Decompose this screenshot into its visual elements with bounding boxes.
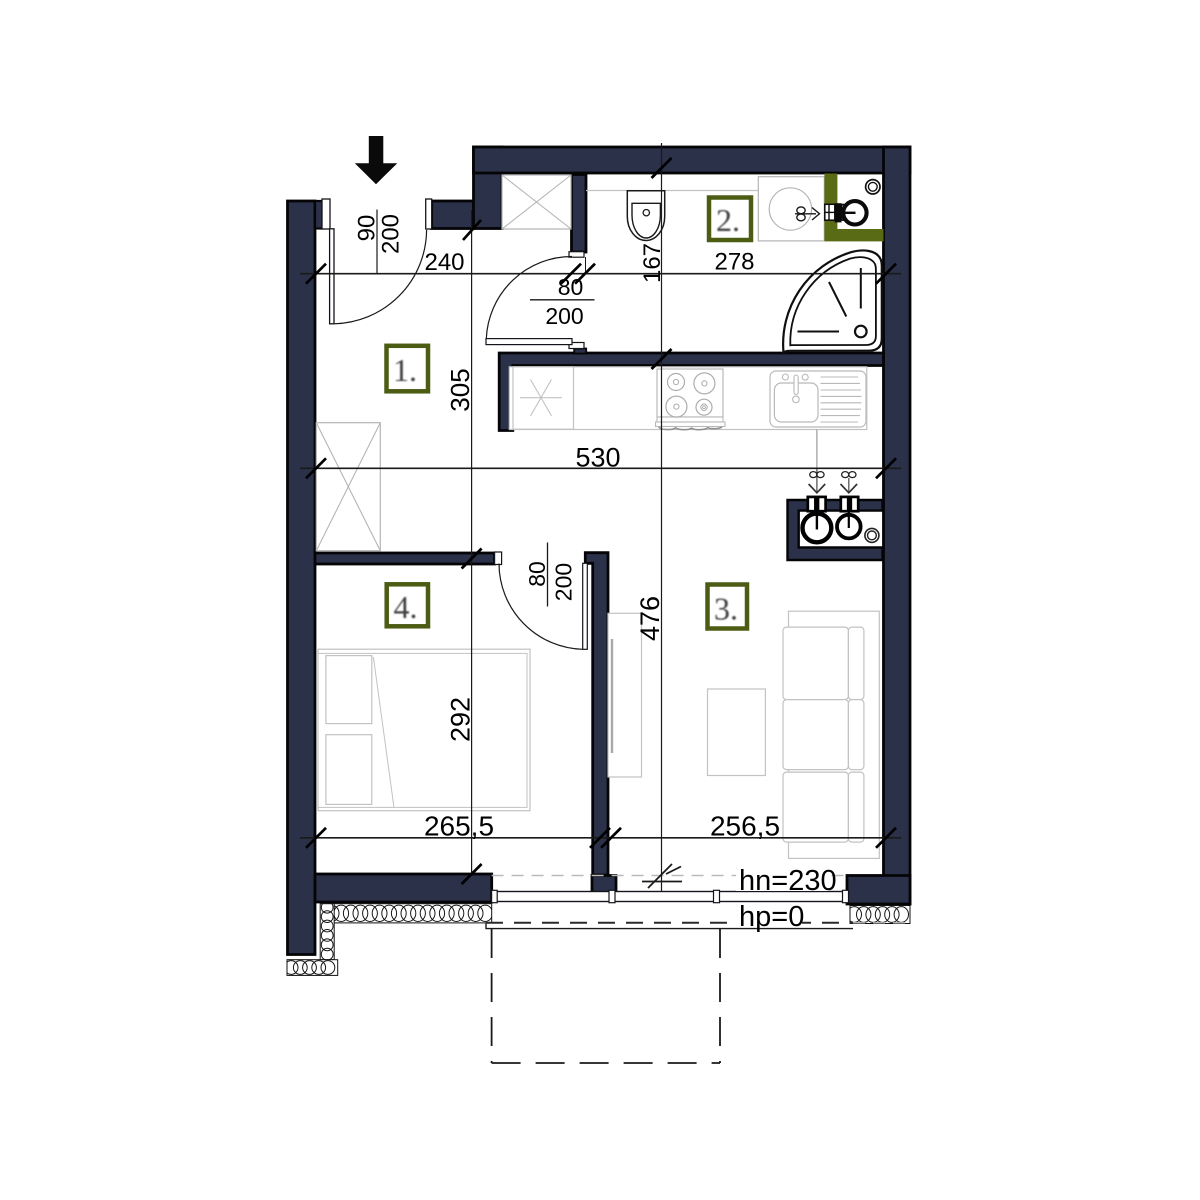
svg-text:1.: 1. [393, 352, 417, 388]
svg-text:305: 305 [445, 368, 475, 411]
svg-text:530: 530 [575, 443, 620, 473]
svg-text:hp=0: hp=0 [739, 901, 804, 933]
svg-text:167: 167 [639, 243, 666, 283]
svg-text:4.: 4. [394, 589, 418, 625]
svg-text:200: 200 [551, 563, 577, 601]
svg-text:265,5: 265,5 [424, 811, 494, 842]
svg-text:256,5: 256,5 [710, 811, 780, 842]
svg-text:hn=230: hn=230 [739, 865, 837, 897]
svg-text:90: 90 [354, 215, 381, 242]
svg-text:476: 476 [635, 596, 665, 641]
svg-text:3.: 3. [714, 591, 738, 627]
svg-text:292: 292 [446, 697, 476, 742]
svg-text:80: 80 [558, 274, 584, 300]
svg-text:2.: 2. [716, 202, 740, 238]
svg-text:240: 240 [424, 249, 464, 276]
svg-text:80: 80 [524, 561, 550, 587]
svg-text:278: 278 [714, 249, 754, 276]
svg-text:200: 200 [378, 214, 405, 254]
svg-text:200: 200 [545, 303, 583, 329]
